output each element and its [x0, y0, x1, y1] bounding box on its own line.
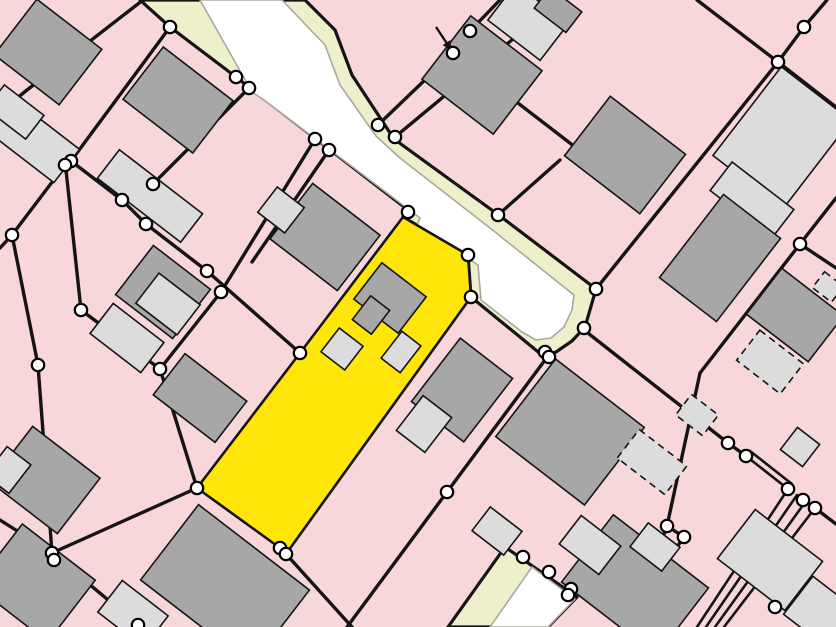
vertex-marker[interactable] — [402, 206, 414, 218]
vertex-marker[interactable] — [769, 601, 781, 613]
vertex-marker[interactable] — [447, 47, 459, 59]
vertex-marker[interactable] — [191, 482, 203, 494]
vertex-marker[interactable] — [462, 249, 474, 261]
vertex-marker[interactable] — [215, 286, 227, 298]
vertex-marker[interactable] — [678, 531, 690, 543]
vertex-marker[interactable] — [132, 619, 144, 627]
vertex-marker[interactable] — [323, 144, 335, 156]
vertex-marker[interactable] — [782, 483, 794, 495]
vertex-marker[interactable] — [243, 82, 255, 94]
vertex-marker[interactable] — [464, 25, 476, 37]
vertex-marker[interactable] — [798, 21, 810, 33]
vertex-marker[interactable] — [48, 554, 60, 566]
vertex-marker[interactable] — [809, 502, 821, 514]
vertex-marker[interactable] — [492, 209, 504, 221]
vertex-marker[interactable] — [740, 450, 752, 462]
vertex-marker[interactable] — [116, 194, 128, 206]
vertex-marker[interactable] — [578, 322, 590, 334]
vertex-marker[interactable] — [590, 283, 602, 295]
vertex-marker[interactable] — [772, 56, 784, 68]
cadastral-map[interactable] — [0, 0, 836, 627]
vertex-marker[interactable] — [230, 71, 242, 83]
vertex-marker[interactable] — [562, 589, 574, 601]
vertex-marker[interactable] — [59, 159, 71, 171]
vertex-marker[interactable] — [140, 218, 152, 230]
vertex-marker[interactable] — [517, 551, 529, 563]
map-viewport[interactable] — [0, 0, 836, 627]
vertex-marker[interactable] — [280, 548, 292, 560]
vertex-marker[interactable] — [389, 131, 401, 143]
vertex-marker[interactable] — [465, 291, 477, 303]
vertex-marker[interactable] — [164, 21, 176, 33]
vertex-marker[interactable] — [661, 520, 673, 532]
vertex-marker[interactable] — [294, 347, 306, 359]
vertex-marker[interactable] — [309, 133, 321, 145]
vertex-marker[interactable] — [441, 486, 453, 498]
vertex-marker[interactable] — [6, 229, 18, 241]
vertex-marker[interactable] — [372, 119, 384, 131]
vertex-marker[interactable] — [543, 566, 555, 578]
vertex-marker[interactable] — [543, 351, 555, 363]
vertex-marker[interactable] — [722, 437, 734, 449]
vertex-marker[interactable] — [154, 363, 166, 375]
vertex-marker[interactable] — [32, 359, 44, 371]
vertex-marker[interactable] — [794, 238, 806, 250]
vertex-marker[interactable] — [797, 494, 809, 506]
vertex-marker[interactable] — [201, 265, 213, 277]
vertex-marker[interactable] — [75, 304, 87, 316]
vertex-marker[interactable] — [147, 178, 159, 190]
